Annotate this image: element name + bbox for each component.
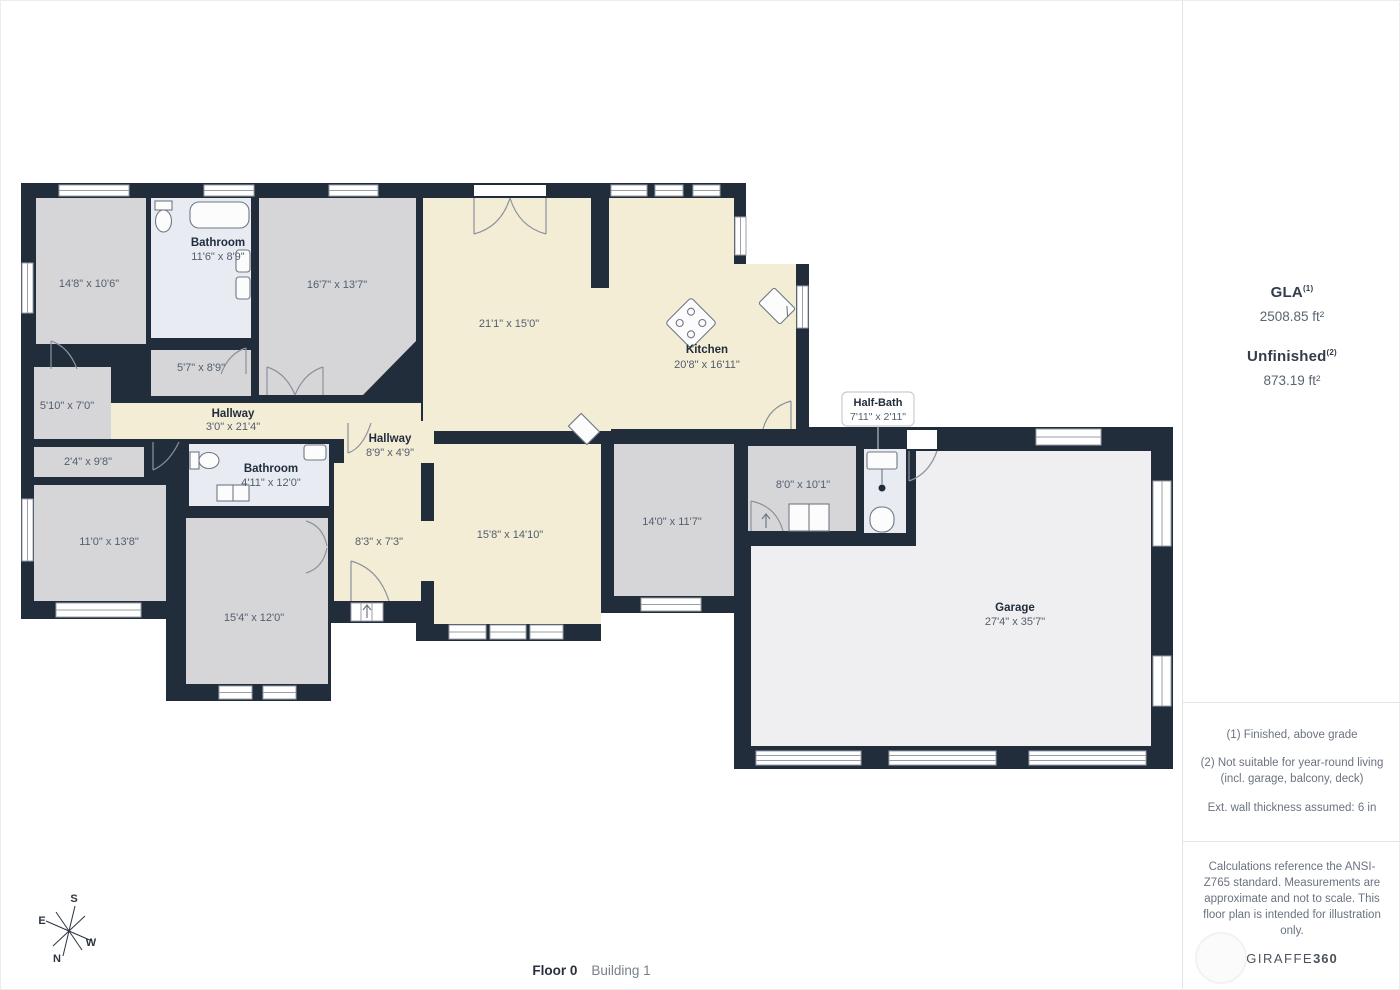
compass-rose: S E W N xyxy=(38,893,96,965)
area-stats: GLA(1) 2508.85 ft² Unfinished(2) 873.19 … xyxy=(1183,1,1400,702)
plan-area: 14'8" x 10'6" Bathroom 11'6" x 8'9" 16'7… xyxy=(1,1,1182,990)
floor-label: Floor 0 xyxy=(532,963,577,978)
label-halfbath-dims: 7'11" x 2'11" xyxy=(850,411,906,423)
passage-living-kitchen xyxy=(589,288,611,431)
floor-plan-svg: 14'8" x 10'6" Bathroom 11'6" x 8'9" 16'7… xyxy=(1,1,1182,990)
label-room-8-3: 8'3" x 7'3" xyxy=(355,536,403,548)
light-fixture xyxy=(879,485,886,492)
logo-watermark-circle xyxy=(1195,932,1247,984)
label-room-8-0: 8'0" x 10'1" xyxy=(776,479,830,491)
footnote-2: (2) Not suitable for year-round living (… xyxy=(1199,756,1385,787)
garage-door-2 xyxy=(889,751,996,765)
label-room-5-7: 5'7" x 8'9" xyxy=(177,362,225,374)
label-bathroom-mid-dims: 4'11" x 12'0" xyxy=(241,477,301,489)
opening-8-3 xyxy=(421,521,434,581)
label-garage-dims: 27'4" x 35'7" xyxy=(985,616,1045,628)
area-summary-sidebar: GLA(1) 2508.85 ft² Unfinished(2) 873.19 … xyxy=(1182,1,1400,990)
label-room-14-8: 14'8" x 10'6" xyxy=(59,278,119,290)
compass-s: S xyxy=(70,893,77,905)
label-bathroom-top-dims: 11'6" x 8'9" xyxy=(191,251,244,263)
label-living: 21'1" x 15'0" xyxy=(479,318,539,330)
gla-footnote-marker: (1) xyxy=(1303,284,1313,293)
room-14-8 xyxy=(36,198,146,344)
label-garage-name: Garage xyxy=(995,602,1035,614)
unfinished-label: Unfinished(2) xyxy=(1183,348,1400,365)
label-room-5-10: 5'10" x 7'0" xyxy=(40,400,94,412)
compass-e: E xyxy=(38,915,45,927)
footnote-3: Ext. wall thickness assumed: 6 in xyxy=(1199,801,1385,817)
building-label: Building 1 xyxy=(591,963,650,978)
label-room-15-4: 15'4" x 12'0" xyxy=(224,612,284,624)
sink-top-2 xyxy=(236,277,250,299)
label-room-11-0: 11'0" x 13'8" xyxy=(79,536,139,548)
toilet-tank-top xyxy=(155,201,172,210)
room-15-4 xyxy=(186,518,328,684)
label-room-15-8: 15'8" x 14'10" xyxy=(477,529,544,541)
toilet-bowl-top xyxy=(156,210,172,232)
french-door-opening xyxy=(474,185,546,196)
room-21-1 xyxy=(423,198,591,431)
label-halfbath-name: Half-Bath xyxy=(854,397,903,409)
disclaimer-text: Calculations reference the ANSI-Z765 sta… xyxy=(1201,859,1383,939)
footnote-1: (1) Finished, above grade xyxy=(1199,728,1385,744)
floorplan-page: 14'8" x 10'6" Bathroom 11'6" x 8'9" 16'7… xyxy=(0,0,1400,990)
gla-value: 2508.85 ft² xyxy=(1183,309,1400,324)
label-kitchen-dims: 20'8" x 16'11" xyxy=(674,359,740,371)
label-hallway1-dims: 3'0" x 21'4" xyxy=(206,421,260,433)
label-room-16-7: 16'7" x 13'7" xyxy=(307,279,367,291)
gla-label: GLA(1) xyxy=(1183,284,1400,301)
floor-indicator: Floor 0Building 1 xyxy=(1,963,1182,978)
garage-side-door-opening xyxy=(907,430,937,449)
unfinished-value: 873.19 ft² xyxy=(1183,373,1400,388)
unfinished-footnote-marker: (2) xyxy=(1327,348,1337,357)
label-room-14-0: 14'0" x 11'7" xyxy=(642,516,702,528)
label-hallway1-name: Hallway xyxy=(212,408,255,420)
sink-mid xyxy=(304,445,326,460)
garage-door-3 xyxy=(1029,751,1146,765)
label-closet-2-4: 2'4" x 9'8" xyxy=(64,456,112,468)
label-hallway2-dims: 8'9" x 4'9" xyxy=(366,447,414,459)
label-hallway2-name: Hallway xyxy=(369,433,412,445)
sink-halfbath xyxy=(867,452,897,469)
logo-text-giraffe: GIRAFFE xyxy=(1246,951,1313,966)
room-8-3 xyxy=(334,463,421,601)
logo-text-360: 360 xyxy=(1313,951,1338,966)
label-kitchen-name: Kitchen xyxy=(686,344,728,356)
toilet-tank-mid xyxy=(190,452,199,469)
garage-door-1 xyxy=(756,751,861,765)
label-bathroom-top-name: Bathroom xyxy=(191,237,245,249)
compass-w: W xyxy=(86,937,97,949)
bathtub xyxy=(190,202,249,228)
toilet-bowl-mid xyxy=(199,453,219,469)
disclaimer-section: Calculations reference the ANSI-Z765 sta… xyxy=(1183,841,1400,990)
footnotes: (1) Finished, above grade (2) Not suitab… xyxy=(1183,702,1400,841)
label-bathroom-mid-name: Bathroom xyxy=(244,463,298,475)
toilet-halfbath xyxy=(870,507,894,532)
